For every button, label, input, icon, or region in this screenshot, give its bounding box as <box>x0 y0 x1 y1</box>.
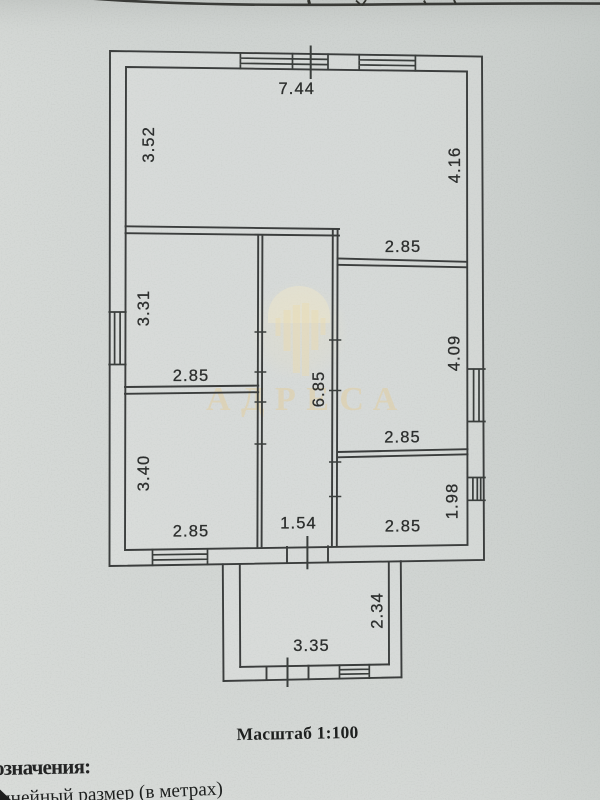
svg-text:4.16: 4.16 <box>446 147 464 184</box>
svg-text:Масштаб 1:100: Масштаб 1:100 <box>236 722 358 744</box>
svg-text:4.09: 4.09 <box>446 335 464 372</box>
svg-text:3.40: 3.40 <box>135 455 153 492</box>
svg-text:7.44: 7.44 <box>279 80 316 98</box>
svg-text:2.85: 2.85 <box>173 367 210 385</box>
svg-text:2.85: 2.85 <box>173 523 210 541</box>
svg-text:2.34: 2.34 <box>369 592 387 629</box>
svg-text:3.52: 3.52 <box>140 126 158 163</box>
svg-text:2.85: 2.85 <box>385 518 422 536</box>
svg-text:2.85: 2.85 <box>384 428 421 446</box>
svg-text:3.31: 3.31 <box>135 290 153 327</box>
svg-text:2.85: 2.85 <box>385 238 422 256</box>
svg-text:1.98: 1.98 <box>443 483 461 520</box>
svg-text:означения:: означения: <box>0 754 91 780</box>
svg-text:3.35: 3.35 <box>293 637 330 655</box>
svg-text:6.85: 6.85 <box>310 371 328 408</box>
svg-text:1.54: 1.54 <box>280 515 317 533</box>
